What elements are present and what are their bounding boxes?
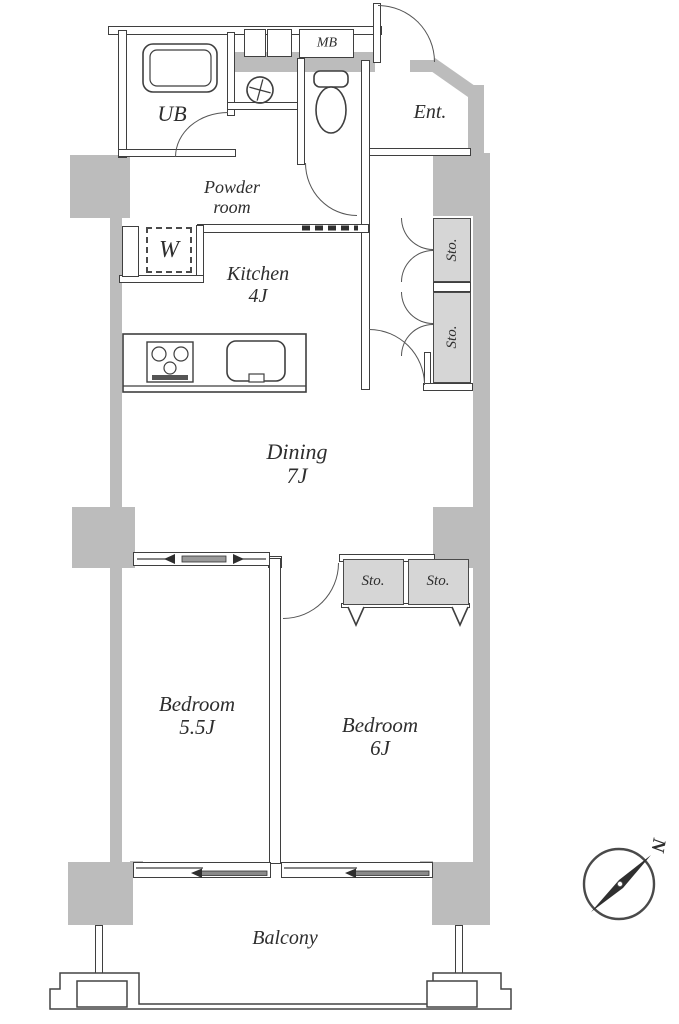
compass-icon — [584, 849, 654, 919]
label-bedroom-small: Bedroom 5.5J — [159, 693, 235, 739]
entrance-step — [369, 148, 471, 156]
mb-box-small-2 — [267, 29, 292, 57]
wall-left-lower — [110, 568, 122, 862]
floor-plan: UB MB Ent. Powder room W Kitchen 4J Sto.… — [0, 0, 679, 1024]
label-dining: Dining 7J — [266, 440, 327, 488]
balcony-divider-right — [455, 925, 463, 986]
wall-storage-divider-right — [433, 282, 471, 292]
pillar-mid-left — [72, 507, 135, 568]
storage-top-door-arc-1 — [401, 218, 433, 250]
sliding-door-frame — [133, 552, 270, 566]
storage-top-door-arc-2 — [401, 250, 433, 282]
duct-box — [122, 226, 139, 277]
mb-box-small-1 — [244, 29, 266, 57]
balcony-railing — [50, 973, 511, 1009]
label-entrance: Ent. — [414, 101, 447, 123]
toilet-icon — [314, 71, 348, 133]
pillar-bottom-right — [432, 862, 490, 925]
storage-bottom-door-arc-1 — [401, 292, 433, 324]
window-left-frame — [133, 862, 271, 878]
window-right-frame — [281, 862, 433, 878]
wall-bedroom-divider — [269, 558, 281, 864]
bedroom-large-door-arc — [283, 563, 339, 619]
storage-bottom-door-arc-2 — [401, 324, 433, 356]
label-washer: W — [159, 237, 179, 263]
label-kitchen: Kitchen 4J — [227, 263, 289, 307]
bathtub-icon — [143, 44, 217, 92]
wall-storage-bottom — [423, 383, 473, 391]
label-ub: UB — [157, 102, 186, 126]
wall-entrance-chamfer — [428, 58, 481, 100]
entrance-door-arc — [378, 5, 435, 62]
wall-toilet-left — [297, 58, 305, 165]
wall-left-upper — [110, 218, 122, 507]
pillar-top-left — [70, 155, 130, 218]
wall-right-lower — [473, 568, 490, 862]
closet-chevron-right — [452, 607, 468, 625]
balcony-divider-left — [95, 925, 103, 986]
wall-kitchen-top — [197, 224, 369, 233]
label-powder-room: Powder room — [204, 178, 260, 218]
kitchen-sink-icon — [227, 341, 285, 382]
label-storage-right-top: Sto. — [444, 239, 461, 262]
label-storage-bedroom-right: Sto. — [427, 573, 450, 590]
wall-right-upper — [473, 216, 490, 507]
label-storage-right-bottom: Sto. — [444, 326, 461, 349]
label-bedroom-large: Bedroom 6J — [342, 714, 418, 760]
stove-icon — [147, 342, 193, 382]
pillar-bottom-left — [68, 862, 133, 925]
pillar-top-right — [433, 153, 490, 216]
label-balcony: Balcony — [252, 927, 318, 949]
closet-chevron-left — [348, 607, 364, 625]
label-compass-north: N — [646, 836, 669, 853]
wall-basin-bottom — [227, 102, 305, 110]
wall-ub-left — [118, 30, 127, 158]
label-storage-bedroom-left: Sto. — [362, 573, 385, 590]
kitchen-counter — [123, 334, 306, 392]
label-mb: MB — [317, 35, 337, 50]
toilet-door-arc — [305, 163, 357, 216]
